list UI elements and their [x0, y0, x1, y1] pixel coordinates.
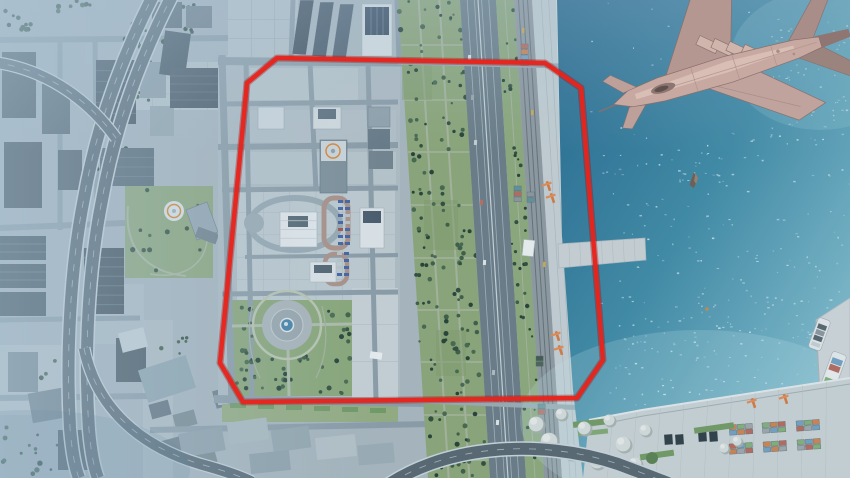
- game-viewport[interactable]: [0, 0, 850, 478]
- scene-canvas: [0, 0, 850, 478]
